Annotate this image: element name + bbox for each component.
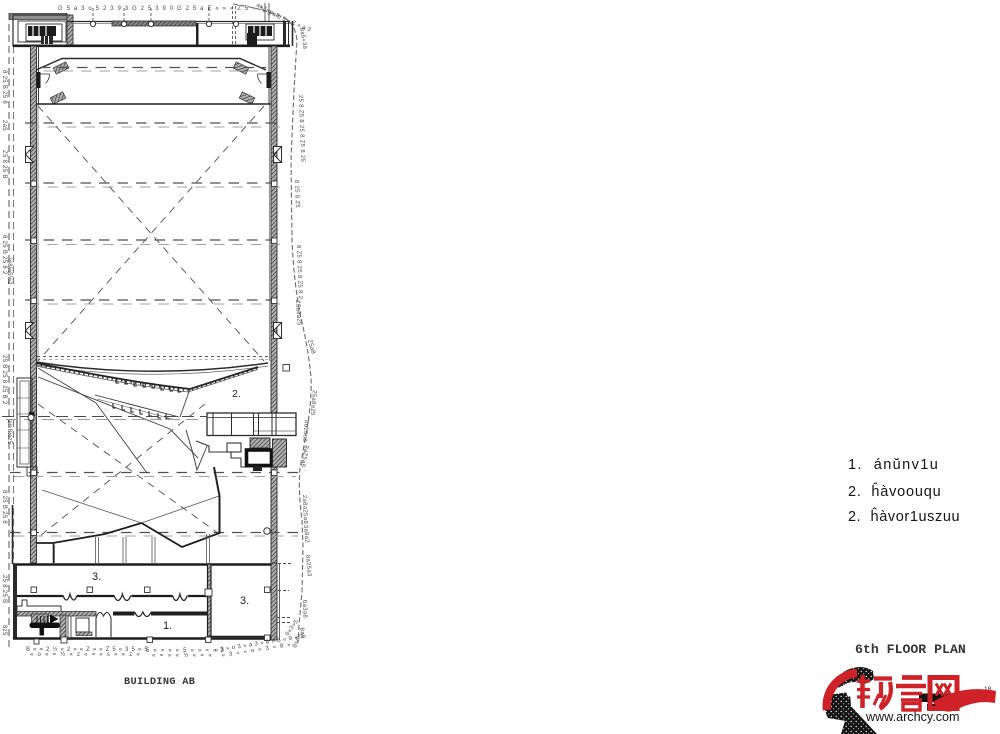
svg-text:2.: 2. bbox=[232, 388, 241, 400]
svg-text:½8½5½2: ½8½5½2 bbox=[6, 258, 13, 285]
svg-text:8 25 B 25 8: 8 25 B 25 8 bbox=[1, 70, 7, 104]
svg-text:1.: 1. bbox=[163, 620, 172, 632]
svg-text:8 25 B 25 8: 8 25 B 25 8 bbox=[1, 490, 7, 524]
svg-text:2. ĥàvor1uszuu: 2. ĥàvor1uszuu bbox=[848, 507, 960, 525]
svg-text:6th FLOOR PLAN: 6th FLOOR PLAN bbox=[855, 642, 966, 657]
svg-text:3.: 3. bbox=[240, 595, 249, 607]
svg-text:8 25 8 Z5: 8 25 8 Z5 bbox=[293, 180, 300, 209]
svg-text:1. ánŭnv1u: 1. ánŭnv1u bbox=[848, 457, 939, 473]
svg-text:«o«=½«z«=«s»«z»: «o«=½«z«=«s»«z» bbox=[30, 651, 140, 658]
svg-text:Z5 8 25 B: Z5 8 25 B bbox=[1, 150, 7, 179]
svg-text:3.: 3. bbox=[92, 571, 101, 583]
svg-text:z½8½z5: z½8½z5 bbox=[6, 420, 13, 445]
svg-text:25 8 25 B: 25 8 25 B bbox=[1, 575, 7, 603]
svg-text:2a5: 2a5 bbox=[1, 120, 7, 131]
svg-text:25 B 25 8 25 B 2: 25 B 25 8 25 B 2 bbox=[1, 355, 7, 405]
svg-text:8z5: 8z5 bbox=[1, 625, 7, 636]
svg-text:BUILDING AB: BUILDING AB bbox=[124, 676, 195, 688]
svg-text:2a8a25a8: 2a8a25a8 bbox=[301, 495, 308, 525]
svg-text:6a3a8: 6a3a8 bbox=[301, 600, 308, 619]
svg-text:2. ĥàvoouqu: 2. ĥàvoouqu bbox=[848, 482, 941, 500]
svg-text:www.archcy.com: www.archcy.com bbox=[865, 710, 960, 724]
